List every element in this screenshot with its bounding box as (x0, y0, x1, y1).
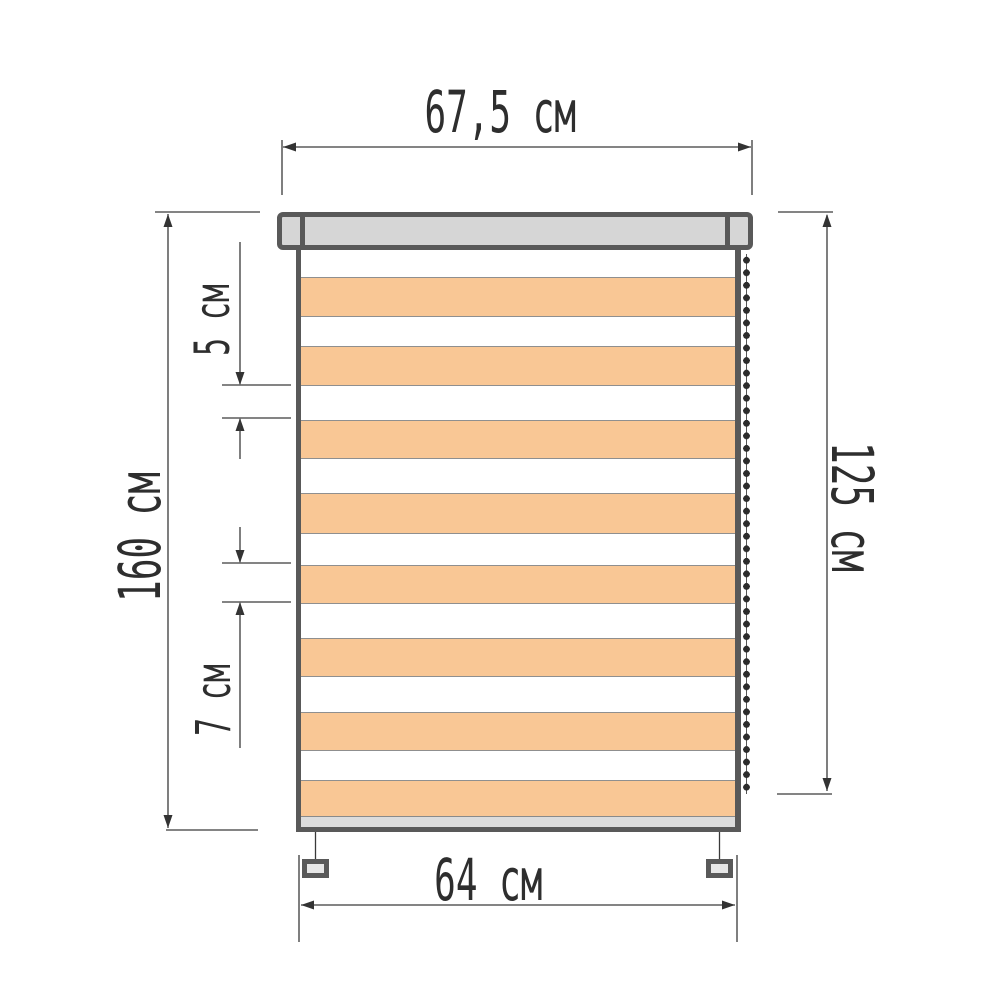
stripe-white (301, 750, 735, 780)
dim-top-width (282, 140, 752, 195)
arrow-up-icon (236, 418, 245, 431)
label-full-height-text: 160 см (111, 472, 169, 602)
stripe-white (301, 253, 735, 277)
stripe-orange (301, 420, 735, 458)
arrow-right-icon (722, 901, 735, 910)
stripe-orange (301, 638, 735, 676)
bead-chain (742, 254, 751, 794)
arrow-right-icon (738, 143, 751, 152)
stripe-orange (301, 277, 735, 316)
label-cassette-width-text: 67,5 см (424, 83, 576, 141)
mounting-bracket-left (302, 859, 329, 878)
stripe-white (301, 385, 735, 420)
stripe-orange (301, 565, 735, 603)
arrow-down-icon (236, 550, 245, 563)
arrow-left-icon (301, 901, 314, 910)
arrow-up-icon (236, 602, 245, 615)
stripe-white (301, 316, 735, 346)
stripe-white (301, 533, 735, 565)
stripe-white (301, 676, 735, 712)
arrow-up-icon (164, 214, 173, 227)
mounting-bracket-right (706, 859, 733, 878)
label-light-stripe-text: 5 см (189, 284, 237, 356)
stripe-orange (301, 712, 735, 750)
label-dark-stripe-text: 7 см (190, 664, 238, 736)
arrow-left-icon (283, 143, 296, 152)
arrow-down-icon (164, 815, 173, 828)
arrow-down-icon (236, 372, 245, 385)
label-fabric-width-text: 64 см (434, 851, 542, 909)
stripe-orange (301, 346, 735, 385)
stripe-orange (301, 493, 735, 533)
fabric-stripes (301, 253, 735, 816)
cassette-end-cap-divider (300, 215, 305, 247)
arrow-down-icon (823, 778, 832, 791)
cassette-end-cap-divider (725, 215, 730, 247)
stripe-white (301, 458, 735, 493)
fabric-panel (296, 250, 741, 832)
cassette-headrail (277, 212, 753, 250)
arrow-up-icon (823, 214, 832, 227)
roller-blind-dimension-diagram: 67,5 см 160 см 5 см 7 см 125 см 64 см (0, 0, 1000, 1000)
stripe-orange (301, 780, 735, 816)
label-fabric-height-text: 125 см (823, 442, 881, 572)
stripe-white (301, 603, 735, 638)
bottom-rail (301, 816, 735, 827)
